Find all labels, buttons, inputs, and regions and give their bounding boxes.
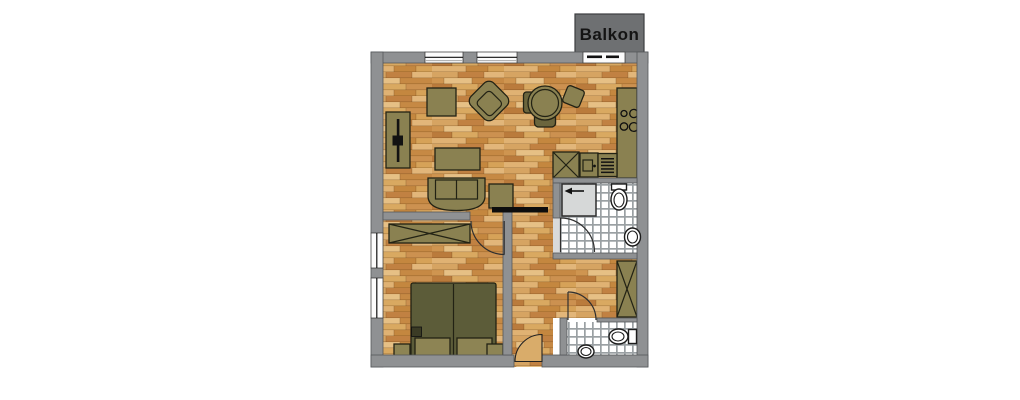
wall-segment bbox=[371, 52, 383, 233]
shower-icon bbox=[562, 184, 596, 216]
wall-segment bbox=[553, 183, 560, 218]
wall-segment bbox=[560, 318, 567, 355]
wc-sink-icon bbox=[578, 345, 594, 358]
bathroom-doorway-threshold bbox=[553, 218, 560, 253]
wall-segment bbox=[542, 355, 648, 367]
balcony-label: Balkon bbox=[580, 25, 640, 44]
wall-segment bbox=[553, 178, 637, 183]
bedroom-doorway-floor bbox=[470, 212, 503, 220]
hallway-floor bbox=[512, 212, 553, 355]
kitchen-faucet-dot bbox=[593, 165, 596, 168]
wall-segment bbox=[463, 52, 477, 63]
floor-plan: Balkon bbox=[0, 0, 1020, 400]
wall-segment bbox=[597, 318, 637, 322]
coffee-table bbox=[435, 148, 480, 170]
wc-toilet-icon bbox=[609, 329, 637, 344]
wall-segment bbox=[517, 52, 583, 63]
sliding-door-bar bbox=[492, 207, 548, 213]
wall-segment bbox=[371, 355, 514, 367]
bathroom-sink-icon bbox=[625, 228, 641, 246]
wall-segment bbox=[371, 268, 383, 278]
balcony-callout: Balkon bbox=[575, 14, 644, 55]
sofa-side-table bbox=[489, 184, 513, 208]
floorplan-image: Balkon bbox=[0, 0, 1020, 400]
bathroom-toilet-icon bbox=[611, 184, 627, 210]
kitchen-counter bbox=[617, 88, 637, 178]
square-side-table bbox=[427, 88, 456, 116]
wall-segment bbox=[637, 52, 648, 367]
dining-table bbox=[528, 86, 562, 120]
wall-segment bbox=[553, 253, 637, 259]
bed-blanket-item bbox=[412, 327, 422, 337]
wall-segment bbox=[383, 212, 470, 220]
